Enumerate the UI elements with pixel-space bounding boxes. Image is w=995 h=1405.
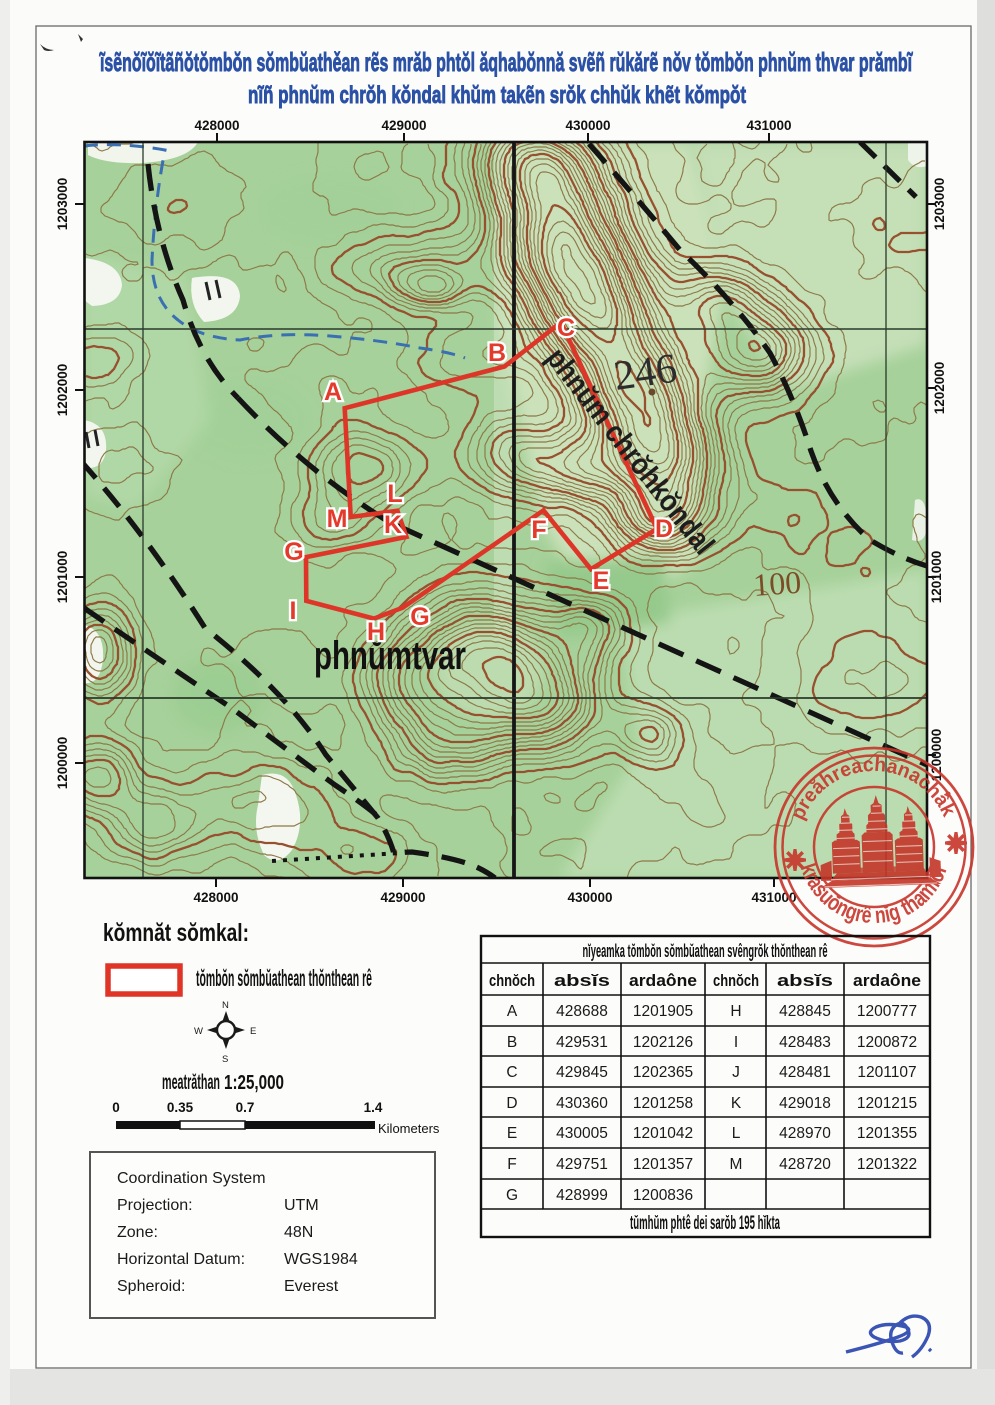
svg-text:429531: 429531 — [556, 1034, 608, 1051]
svg-text:L: L — [732, 1125, 741, 1142]
svg-text:C: C — [557, 314, 575, 342]
svg-text:A: A — [507, 1003, 518, 1020]
svg-text:G: G — [284, 538, 303, 566]
svg-text:C: C — [506, 1064, 517, 1081]
svg-text:I: I — [290, 597, 297, 625]
svg-text:431000: 431000 — [746, 118, 791, 133]
svg-text:Kilometers: Kilometers — [378, 1121, 440, 1136]
svg-text:chnŏch: chnŏch — [489, 971, 535, 990]
svg-text:chnŏch: chnŏch — [713, 971, 759, 990]
svg-text:1202126: 1202126 — [633, 1034, 693, 1051]
svg-text:E: E — [507, 1125, 517, 1142]
svg-text:428845: 428845 — [779, 1003, 831, 1020]
svg-text:428000: 428000 — [193, 890, 238, 905]
svg-text:B: B — [507, 1034, 517, 1051]
svg-text:1201107: 1201107 — [857, 1064, 916, 1081]
svg-text:ardaône: ardaône — [853, 971, 921, 990]
svg-text:Horizontal Datum:: Horizontal Datum: — [117, 1251, 245, 1268]
svg-text:1203000: 1203000 — [55, 178, 70, 231]
svg-text:Spheroid:: Spheroid: — [117, 1278, 186, 1295]
svg-text:I: I — [734, 1034, 738, 1051]
svg-text:A: A — [324, 378, 342, 406]
svg-text:246: 246 — [611, 346, 680, 400]
svg-text:Zone:: Zone: — [117, 1224, 158, 1241]
svg-text:1201322: 1201322 — [857, 1156, 917, 1173]
svg-text:Everest: Everest — [284, 1278, 339, 1295]
svg-text:429751: 429751 — [556, 1156, 608, 1173]
svg-text:nĭyeamka tŏmbŏn sŏmbŭathean sv: nĭyeamka tŏmbŏn sŏmbŭathean svêngrŏk thŏ… — [583, 941, 828, 961]
svg-text:N: N — [222, 1000, 229, 1011]
svg-text:429845: 429845 — [556, 1064, 608, 1081]
svg-text:H: H — [730, 1003, 741, 1020]
svg-text:1202000: 1202000 — [932, 362, 947, 415]
svg-text:ĩsẽnŏĩŏĩtãñŏtŏmbŏn sŏmbŭathěan: ĩsẽnŏĩŏĩtãñŏtŏmbŏn sŏmbŭathěan rẽs mrăb … — [99, 47, 913, 77]
svg-text:K: K — [384, 511, 402, 539]
svg-text:M: M — [327, 505, 348, 533]
svg-text:0: 0 — [112, 1100, 120, 1115]
svg-text:absĭs: absĭs — [777, 971, 833, 990]
svg-text:UTM: UTM — [284, 1197, 319, 1214]
svg-text:D: D — [655, 515, 673, 543]
svg-text:H: H — [367, 618, 385, 646]
svg-text:1201000: 1201000 — [929, 551, 944, 604]
svg-text:430005: 430005 — [556, 1125, 608, 1142]
svg-text:1201905: 1201905 — [633, 1003, 693, 1020]
svg-text:1202000: 1202000 — [55, 364, 70, 417]
svg-text:428483: 428483 — [779, 1034, 831, 1051]
svg-text:K: K — [731, 1095, 742, 1112]
svg-text:0.7: 0.7 — [236, 1100, 255, 1115]
svg-text:1:25,000: 1:25,000 — [224, 1072, 284, 1094]
svg-text:meatrăthan: meatrăthan — [162, 1071, 220, 1094]
svg-text:S: S — [222, 1054, 228, 1065]
svg-text:1200777: 1200777 — [857, 1003, 917, 1020]
svg-text:430000: 430000 — [565, 118, 610, 133]
svg-text:1201000: 1201000 — [55, 551, 70, 604]
svg-text:100: 100 — [752, 564, 802, 603]
svg-text:1201042: 1201042 — [633, 1125, 693, 1142]
svg-text:G: G — [410, 603, 429, 631]
svg-text:430360: 430360 — [556, 1095, 608, 1112]
svg-text:F: F — [531, 516, 546, 544]
svg-text:E: E — [593, 567, 610, 595]
svg-text:tŭmhŭm phtê dei sarŏb 195 hĭkt: tŭmhŭm phtê dei sarŏb 195 hĭkta — [630, 1213, 780, 1234]
svg-text:428720: 428720 — [779, 1156, 831, 1173]
svg-text:429018: 429018 — [779, 1095, 831, 1112]
svg-text:1202365: 1202365 — [633, 1064, 693, 1081]
svg-text:430000: 430000 — [567, 890, 612, 905]
svg-text:428999: 428999 — [556, 1187, 608, 1204]
svg-text:Projection:: Projection: — [117, 1197, 193, 1214]
svg-text:D: D — [506, 1095, 517, 1112]
svg-text:F: F — [507, 1156, 516, 1173]
svg-text:1201258: 1201258 — [633, 1095, 693, 1112]
svg-text:kŏmnăt sŏmkal:: kŏmnăt sŏmkal: — [103, 919, 249, 947]
svg-text:nĩñ phnŭm chrŏh kŏndal khŭm ta: nĩñ phnŭm chrŏh kŏndal khŭm takẽn srŏk c… — [248, 82, 746, 109]
svg-text:tŏmbŏn sŏmbŭathean thŏnthean r: tŏmbŏn sŏmbŭathean thŏnthean rê — [196, 965, 372, 991]
svg-text:1200000: 1200000 — [55, 737, 70, 790]
svg-text:Coordination System: Coordination System — [117, 1170, 266, 1187]
svg-text:phnŭmtvar: phnŭmtvar — [314, 634, 466, 678]
svg-text:428481: 428481 — [779, 1064, 831, 1081]
svg-text:W: W — [194, 1026, 203, 1037]
svg-text:ardaône: ardaône — [629, 971, 697, 990]
svg-text:J: J — [732, 1064, 740, 1081]
svg-text:1201215: 1201215 — [857, 1095, 917, 1112]
svg-text:G: G — [506, 1187, 518, 1204]
svg-text:428688: 428688 — [556, 1003, 608, 1020]
svg-text:1201355: 1201355 — [857, 1125, 917, 1142]
svg-text:1.4: 1.4 — [364, 1100, 383, 1115]
svg-text:1201357: 1201357 — [633, 1156, 693, 1173]
svg-text:WGS1984: WGS1984 — [284, 1251, 358, 1268]
svg-text:E: E — [250, 1026, 256, 1037]
svg-text:B: B — [488, 339, 506, 367]
svg-text:1203000: 1203000 — [932, 178, 947, 231]
svg-text:M: M — [730, 1156, 743, 1173]
svg-text:1200836: 1200836 — [633, 1187, 693, 1204]
svg-text:1200872: 1200872 — [857, 1034, 917, 1051]
svg-text:429000: 429000 — [380, 890, 425, 905]
svg-text:428000: 428000 — [194, 118, 239, 133]
svg-text:absĭs: absĭs — [554, 971, 610, 990]
svg-text:0.35: 0.35 — [167, 1100, 194, 1115]
svg-text:L: L — [387, 480, 402, 508]
svg-text:48N: 48N — [284, 1224, 313, 1241]
svg-text:429000: 429000 — [381, 118, 426, 133]
svg-text:428970: 428970 — [779, 1125, 831, 1142]
